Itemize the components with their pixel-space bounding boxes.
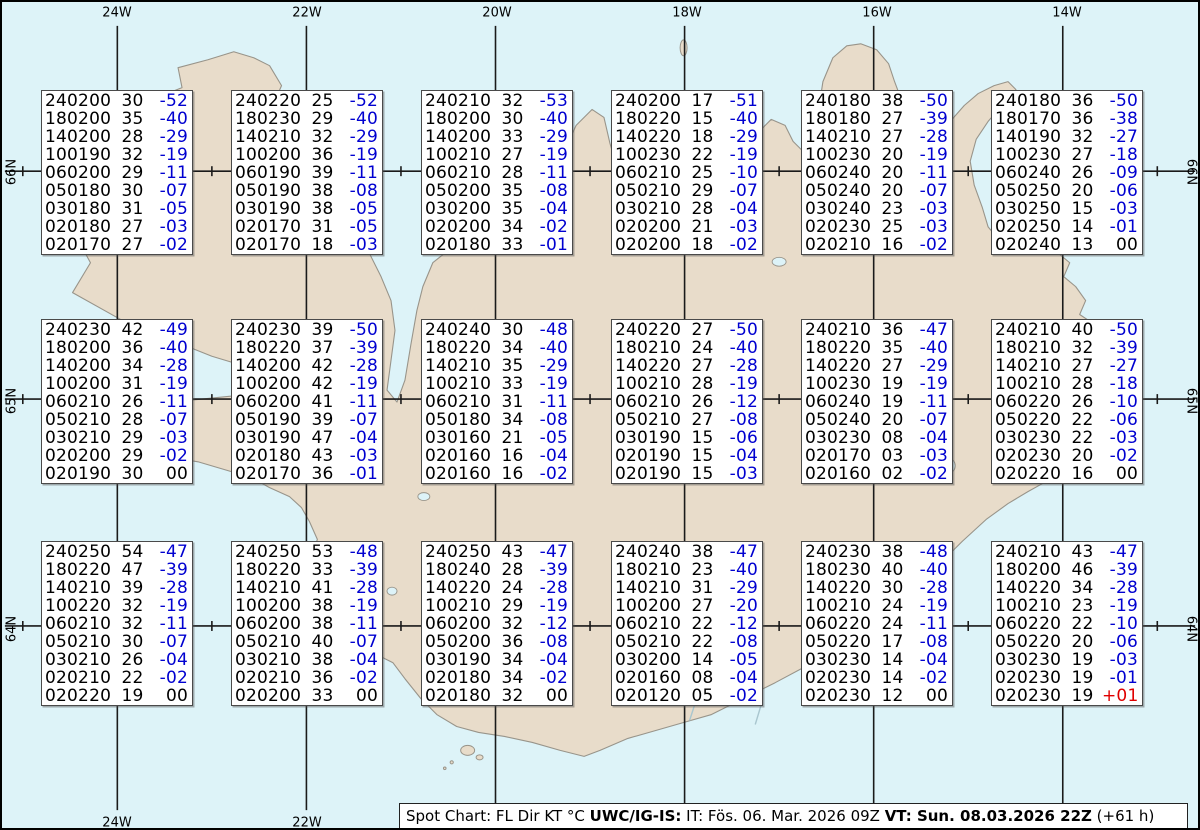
wind-speed-kt: 43 [310, 447, 334, 465]
wind-speed-kt: 40 [310, 633, 334, 651]
wind-speed-kt: 24 [690, 339, 714, 357]
wind-speed-kt: 47 [310, 429, 334, 447]
flight-level-direction: 020230 [805, 218, 871, 236]
spot-line: 18020035-40 [45, 110, 188, 128]
temperature-c: -28 [342, 357, 378, 375]
wind-speed-kt: 25 [310, 92, 334, 110]
flight-level-direction: 060210 [45, 393, 111, 411]
flight-level-direction: 140220 [425, 579, 491, 597]
temperature-c: -02 [152, 236, 188, 254]
wind-speed-kt: 19 [1070, 651, 1094, 669]
temperature-c: -03 [912, 218, 948, 236]
temperature-c: -04 [722, 200, 758, 218]
wind-speed-kt: 14 [1070, 218, 1094, 236]
spot-line: 10020038-19 [235, 597, 378, 615]
temperature-c: -07 [342, 411, 378, 429]
flight-level-direction: 240230 [45, 321, 111, 339]
spot-line: 03021029-03 [45, 429, 188, 447]
wind-speed-kt: 35 [500, 357, 524, 375]
spot-line: 14021039-28 [45, 579, 188, 597]
temperature-c: -40 [532, 110, 568, 128]
wind-speed-kt: 34 [500, 218, 524, 236]
temperature-c: -28 [152, 357, 188, 375]
temperature-c: -18 [1102, 375, 1138, 393]
spot-line: 02023020-02 [995, 447, 1138, 465]
flight-level-direction: 020180 [425, 236, 491, 254]
temperature-c: -50 [1102, 92, 1138, 110]
flight-level-direction: 180230 [235, 110, 301, 128]
wind-speed-kt: 02 [880, 465, 904, 483]
wind-speed-kt: 27 [880, 357, 904, 375]
wind-speed-kt: 14 [880, 669, 904, 687]
flight-level-direction: 020170 [235, 465, 301, 483]
wind-speed-kt: 30 [500, 321, 524, 339]
wind-speed-kt: 28 [500, 561, 524, 579]
temperature-c: -02 [152, 669, 188, 687]
temperature-c: -05 [152, 200, 188, 218]
temperature-c: -06 [1102, 411, 1138, 429]
flight-level-direction: 140210 [235, 579, 301, 597]
lon-label-bottom-22w: 22W [292, 816, 321, 830]
spot-line: 02020021-03 [615, 218, 758, 236]
temperature-c: -06 [722, 429, 758, 447]
lon-label-top-24w: 24W [102, 6, 131, 21]
flight-level-direction: 060220 [995, 615, 1061, 633]
lat-label-right-66n: 66N [1184, 159, 1199, 185]
spot-line: 24023042-49 [45, 321, 188, 339]
flight-level-direction: 050200 [425, 182, 491, 200]
flight-level-direction: 180200 [45, 339, 111, 357]
temperature-c: 00 [152, 687, 188, 705]
vestmannaeyjar-islet [476, 755, 483, 760]
wind-speed-kt: 22 [1070, 615, 1094, 633]
temperature-c: -47 [152, 543, 188, 561]
spot-line: 10021029-19 [425, 597, 568, 615]
temperature-c: -47 [722, 543, 758, 561]
flight-level-direction: 020170 [45, 236, 111, 254]
temperature-c: 00 [912, 687, 948, 705]
wind-speed-kt: 16 [500, 447, 524, 465]
spot-line: 24022027-50 [615, 321, 758, 339]
temperature-c: -19 [722, 146, 758, 164]
wind-speed-kt: 27 [690, 357, 714, 375]
temperature-c: -29 [532, 128, 568, 146]
lat-label-left-66n: 66N [5, 159, 20, 185]
spot-line: 14020033-29 [425, 128, 568, 146]
flight-level-direction: 060210 [425, 393, 491, 411]
temperature-c: 00 [342, 687, 378, 705]
flight-level-direction: 020230 [805, 669, 871, 687]
wind-speed-kt: 18 [690, 128, 714, 146]
temperature-c: -04 [722, 447, 758, 465]
flight-level-direction: 180180 [805, 110, 871, 128]
temperature-c: -08 [912, 633, 948, 651]
spot-line: 05022022-06 [995, 411, 1138, 429]
spot-box-r3c6: 24021043-4718020046-3914022034-281002102… [991, 541, 1143, 706]
wind-speed-kt: 25 [880, 218, 904, 236]
flight-level-direction: 140210 [235, 128, 301, 146]
temperature-c: -08 [532, 411, 568, 429]
temperature-c: -02 [532, 669, 568, 687]
temperature-c: -06 [1102, 182, 1138, 200]
wind-speed-kt: 27 [880, 128, 904, 146]
temperature-c: -19 [152, 597, 188, 615]
flight-level-direction: 030200 [615, 651, 681, 669]
spot-box-r2c2: 24023039-5018022037-3914020042-281002004… [231, 319, 383, 484]
flight-level-direction: 050210 [235, 633, 301, 651]
spot-line: 10021028-19 [615, 375, 758, 393]
temperature-c: -04 [912, 651, 948, 669]
spot-line: 24022025-52 [235, 92, 378, 110]
wind-speed-kt: 36 [310, 465, 334, 483]
spot-box-r1c5: 24018038-5018018027-3914021027-281002302… [801, 90, 953, 255]
spot-line: 14022027-28 [615, 357, 758, 375]
spot-line: 10023019-19 [805, 375, 948, 393]
wind-speed-kt: 53 [310, 543, 334, 561]
temperature-c: -49 [152, 321, 188, 339]
temperature-c: -02 [1102, 447, 1138, 465]
temperature-c: -40 [722, 561, 758, 579]
spot-line: 14022018-29 [615, 128, 758, 146]
spot-line: 24020030-52 [45, 92, 188, 110]
spot-line: 06022026-10 [995, 393, 1138, 411]
wind-speed-kt: 26 [120, 393, 144, 411]
flight-level-direction: 180230 [805, 561, 871, 579]
spot-line: 14020028-29 [45, 128, 188, 146]
flight-level-direction: 140220 [805, 579, 871, 597]
temperature-c: -28 [912, 579, 948, 597]
spot-line: 06020029-11 [45, 164, 188, 182]
spot-line: 03021026-04 [45, 651, 188, 669]
wind-speed-kt: 36 [1070, 92, 1094, 110]
temperature-c: -11 [532, 393, 568, 411]
wind-speed-kt: 03 [880, 447, 904, 465]
flight-level-direction: 100200 [235, 375, 301, 393]
spot-line: 10020031-19 [45, 375, 188, 393]
spot-line: 10020027-20 [615, 597, 758, 615]
flight-level-direction: 100220 [45, 597, 111, 615]
temperature-c: -39 [912, 110, 948, 128]
flight-level-direction: 020200 [235, 687, 301, 705]
spot-box-r3c3: 24025043-4718024028-3914022024-281002102… [421, 541, 573, 706]
temperature-c: -40 [152, 110, 188, 128]
wind-speed-kt: 27 [120, 236, 144, 254]
temperature-c: -12 [532, 615, 568, 633]
islet [443, 767, 446, 770]
temperature-c: -19 [912, 146, 948, 164]
flight-level-direction: 060200 [235, 615, 301, 633]
temperature-c: -19 [1102, 597, 1138, 615]
temperature-c: -50 [1102, 321, 1138, 339]
flight-level-direction: 020230 [995, 669, 1061, 687]
spot-line: 03019015-06 [615, 429, 758, 447]
spot-line: 24023038-48 [805, 543, 948, 561]
temperature-c: -07 [912, 182, 948, 200]
flight-level-direction: 020200 [45, 447, 111, 465]
temperature-c: -12 [722, 393, 758, 411]
flight-level-direction: 140220 [805, 357, 871, 375]
flight-level-direction: 100200 [45, 375, 111, 393]
spot-line: 03019047-04 [235, 429, 378, 447]
flight-level-direction: 020190 [615, 465, 681, 483]
temperature-c: 00 [1102, 465, 1138, 483]
wind-speed-kt: 43 [500, 543, 524, 561]
spot-line: 06021026-11 [45, 393, 188, 411]
flight-level-direction: 020210 [805, 236, 871, 254]
temperature-c: -18 [1102, 146, 1138, 164]
spot-line: 05022020-06 [995, 633, 1138, 651]
temperature-c: -47 [1102, 543, 1138, 561]
wind-speed-kt: 27 [120, 218, 144, 236]
flight-level-direction: 100210 [805, 597, 871, 615]
spot-line: 14022034-28 [995, 579, 1138, 597]
spot-line: 10020036-19 [235, 146, 378, 164]
temperature-c: -04 [912, 429, 948, 447]
spot-line: 0201903000 [45, 465, 188, 483]
wind-speed-kt: 21 [690, 218, 714, 236]
spot-line: 14022030-28 [805, 579, 948, 597]
temperature-c: -03 [152, 429, 188, 447]
spot-box-r1c2: 24022025-5218023029-4014021032-291002003… [231, 90, 383, 255]
spot-line: 18023029-40 [235, 110, 378, 128]
flight-level-direction: 020160 [805, 465, 871, 483]
temperature-c: -06 [1102, 633, 1138, 651]
temperature-c: -19 [342, 146, 378, 164]
wind-speed-kt: 39 [310, 321, 334, 339]
wind-speed-kt: 33 [500, 128, 524, 146]
flight-level-direction: 100200 [235, 146, 301, 164]
temperature-c: -19 [532, 597, 568, 615]
temperature-c: -40 [722, 110, 758, 128]
spot-line: 14022027-29 [805, 357, 948, 375]
temperature-c: -52 [342, 92, 378, 110]
wind-speed-kt: 41 [310, 393, 334, 411]
spot-line: 14021027-28 [805, 128, 948, 146]
temperature-c: -19 [912, 375, 948, 393]
spot-line: 24025054-47 [45, 543, 188, 561]
wind-speed-kt: 32 [310, 128, 334, 146]
spot-line: 24025053-48 [235, 543, 378, 561]
wind-speed-kt: 43 [1070, 543, 1094, 561]
spot-line: 18022034-40 [425, 339, 568, 357]
spot-line: 0202003300 [235, 687, 378, 705]
spot-box-r1c4: 24020017-5118022015-4014022018-291002302… [611, 90, 763, 255]
spot-line: 03021028-04 [615, 200, 758, 218]
flight-level-direction: 140200 [235, 357, 301, 375]
wind-speed-kt: 46 [1070, 561, 1094, 579]
spot-box-r2c1: 24023042-4918020036-4014020034-281002003… [41, 319, 193, 484]
spot-line: 03024023-03 [805, 200, 948, 218]
lake [418, 493, 430, 501]
flight-level-direction: 240250 [425, 543, 491, 561]
wind-speed-kt: 16 [880, 236, 904, 254]
wind-speed-kt: 16 [500, 465, 524, 483]
flight-level-direction: 020160 [425, 465, 491, 483]
spot-box-r2c5: 24021036-4718022035-4014022027-291002301… [801, 319, 953, 484]
temperature-c: -40 [342, 110, 378, 128]
spot-line: 03019038-05 [235, 200, 378, 218]
spot-line: 02012005-02 [615, 687, 758, 705]
spot-line: 06024026-09 [995, 164, 1138, 182]
lake [387, 587, 397, 595]
spot-line: 14020034-28 [45, 357, 188, 375]
flight-level-direction: 050240 [805, 182, 871, 200]
wind-speed-kt: 18 [310, 236, 334, 254]
temperature-c: -02 [912, 669, 948, 687]
wind-speed-kt: 29 [500, 597, 524, 615]
spot-line: 05024020-07 [805, 411, 948, 429]
temperature-c: -39 [152, 561, 188, 579]
temperature-c: -19 [152, 375, 188, 393]
flight-level-direction: 060210 [615, 615, 681, 633]
flight-level-direction: 020190 [45, 465, 111, 483]
spot-line: 18024028-39 [425, 561, 568, 579]
flight-level-direction: 140210 [805, 128, 871, 146]
spot-line: 06022024-11 [805, 615, 948, 633]
spot-line: 05021028-07 [45, 411, 188, 429]
spot-line: 10021027-19 [425, 146, 568, 164]
flight-level-direction: 140200 [45, 357, 111, 375]
flight-level-direction: 140210 [45, 579, 111, 597]
spot-line: 18023040-40 [805, 561, 948, 579]
lat-label-left-65n: 65N [5, 388, 20, 414]
spot-line: 05021040-07 [235, 633, 378, 651]
spot-line: 14019032-27 [995, 128, 1138, 146]
flight-level-direction: 030200 [425, 200, 491, 218]
flight-level-direction: 020200 [425, 218, 491, 236]
flight-level-direction: 180220 [615, 110, 681, 128]
wind-speed-kt: 42 [310, 375, 334, 393]
temperature-c: -28 [532, 579, 568, 597]
wind-speed-kt: 34 [500, 669, 524, 687]
flight-level-direction: 060210 [615, 393, 681, 411]
flight-level-direction: 030210 [615, 200, 681, 218]
spot-line: 06021032-11 [45, 615, 188, 633]
flight-level-direction: 050210 [615, 633, 681, 651]
flight-level-direction: 030190 [615, 429, 681, 447]
temperature-c: -11 [912, 164, 948, 182]
flight-level-direction: 030190 [425, 651, 491, 669]
wind-speed-kt: 39 [310, 164, 334, 182]
flight-level-direction: 050250 [995, 182, 1061, 200]
spot-line: 24018036-50 [995, 92, 1138, 110]
wind-speed-kt: 27 [1070, 146, 1094, 164]
wind-speed-kt: 24 [880, 615, 904, 633]
spot-line: 02016008-04 [615, 669, 758, 687]
spot-line: 02020029-02 [45, 447, 188, 465]
spot-line: 18017036-38 [995, 110, 1138, 128]
flight-level-direction: 050200 [425, 633, 491, 651]
temperature-c: -19 [532, 375, 568, 393]
flight-level-direction: 100230 [615, 146, 681, 164]
wind-speed-kt: 15 [1070, 200, 1094, 218]
spot-line: 06020041-11 [235, 393, 378, 411]
flight-level-direction: 240250 [235, 543, 301, 561]
spot-line: 18021023-40 [615, 561, 758, 579]
flight-level-direction: 140220 [615, 357, 681, 375]
flight-level-direction: 100210 [615, 375, 681, 393]
temperature-c: -02 [912, 236, 948, 254]
temperature-c: -11 [532, 164, 568, 182]
flight-level-direction: 020170 [235, 218, 301, 236]
flight-level-direction: 030180 [45, 200, 111, 218]
spot-box-r2c6: 24021040-5018021032-3914021027-271002102… [991, 319, 1143, 484]
wind-speed-kt: 32 [1070, 128, 1094, 146]
wind-speed-kt: 47 [120, 561, 144, 579]
temperature-c: -03 [152, 218, 188, 236]
spot-line: 06021022-12 [615, 615, 758, 633]
temperature-c: -02 [152, 447, 188, 465]
wind-speed-kt: 33 [500, 375, 524, 393]
temperature-c: -19 [912, 597, 948, 615]
wind-speed-kt: 38 [310, 651, 334, 669]
flight-level-direction: 180210 [995, 339, 1061, 357]
flight-level-direction: 140200 [425, 128, 491, 146]
spot-line: 05021022-08 [615, 633, 758, 651]
spot-line: 24024038-47 [615, 543, 758, 561]
wind-speed-kt: 22 [690, 633, 714, 651]
lon-label-top-16w: 16W [862, 6, 891, 21]
spot-line: 10020042-19 [235, 375, 378, 393]
flight-level-direction: 020170 [805, 447, 871, 465]
flight-level-direction: 100210 [425, 597, 491, 615]
spot-line: 10023020-19 [805, 146, 948, 164]
flight-level-direction: 100230 [805, 146, 871, 164]
spot-line: 02017018-03 [235, 236, 378, 254]
spot-line: 02021036-02 [235, 669, 378, 687]
temperature-c: -07 [152, 633, 188, 651]
temperature-c: -10 [1102, 393, 1138, 411]
flight-level-direction: 060210 [45, 615, 111, 633]
spot-line: 06020038-11 [235, 615, 378, 633]
wind-speed-kt: 28 [120, 411, 144, 429]
wind-speed-kt: 22 [690, 615, 714, 633]
wind-speed-kt: 32 [120, 597, 144, 615]
wind-speed-kt: 19 [1070, 669, 1094, 687]
temperature-c: -04 [342, 429, 378, 447]
wind-speed-kt: 38 [880, 543, 904, 561]
flight-level-direction: 060190 [235, 164, 301, 182]
wind-speed-kt: 32 [500, 687, 524, 705]
spot-line: 05022017-08 [805, 633, 948, 651]
wind-speed-kt: 15 [690, 110, 714, 128]
spot-line: 0202401300 [995, 236, 1138, 254]
temperature-c: -28 [722, 357, 758, 375]
spot-line: 18022033-39 [235, 561, 378, 579]
wind-speed-kt: 30 [120, 182, 144, 200]
caption-segment: Spot Chart: FL Dir KT °C [406, 807, 590, 825]
temperature-c: -03 [342, 447, 378, 465]
wind-speed-kt: 08 [690, 669, 714, 687]
temperature-c: -07 [152, 411, 188, 429]
spot-line: 0201803200 [425, 687, 568, 705]
flight-level-direction: 020180 [235, 447, 301, 465]
temperature-c: -04 [152, 651, 188, 669]
spot-line: 02019015-04 [615, 447, 758, 465]
spot-line: 06020032-12 [425, 615, 568, 633]
temperature-c: -01 [1102, 669, 1138, 687]
wind-speed-kt: 19 [880, 375, 904, 393]
flight-level-direction: 240220 [615, 321, 681, 339]
wind-speed-kt: 27 [500, 146, 524, 164]
flight-level-direction: 030230 [805, 651, 871, 669]
spot-box-r3c4: 24024038-4718021023-4014021031-291002002… [611, 541, 763, 706]
flight-level-direction: 240240 [425, 321, 491, 339]
wind-speed-kt: 27 [1070, 357, 1094, 375]
temperature-c: -01 [532, 236, 568, 254]
temperature-c: -05 [342, 200, 378, 218]
flight-level-direction: 240230 [235, 321, 301, 339]
